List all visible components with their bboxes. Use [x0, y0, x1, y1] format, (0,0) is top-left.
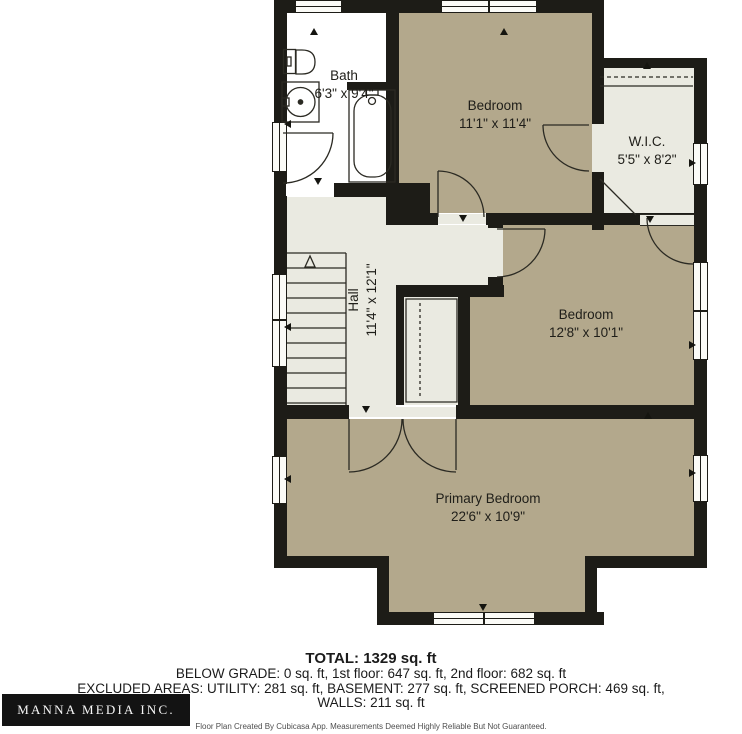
label-bedroom-mid: Bedroom 12'8" x 10'1"	[549, 306, 623, 342]
wall	[386, 13, 399, 197]
window	[484, 612, 535, 625]
window	[272, 456, 287, 504]
door-opening	[592, 124, 604, 172]
room-dims: 22'6" x 10'9"	[435, 508, 540, 526]
room-dims: 11'1" x 11'4"	[459, 115, 531, 133]
wall	[274, 183, 286, 197]
room-name: Bedroom	[549, 306, 623, 324]
wall	[396, 285, 404, 405]
room-dims: 11'4" x 12'1"	[363, 263, 381, 336]
room-dims: 12'8" x 10'1"	[549, 324, 623, 342]
room-name: Hall	[345, 263, 363, 336]
logo-text: MANNA MEDIA INC.	[17, 702, 175, 718]
window	[272, 320, 287, 367]
window	[693, 262, 708, 311]
label-primary: Primary Bedroom 22'6" x 10'9"	[435, 490, 540, 526]
total-area: TOTAL: 1329 sq. ft	[0, 651, 742, 667]
door-opening	[349, 407, 456, 417]
room-name: Bath	[314, 67, 373, 85]
room-bedroom-mid-ext	[470, 295, 490, 407]
wall	[274, 556, 378, 568]
wall	[585, 556, 707, 568]
room-hall-closet	[404, 297, 458, 405]
door-opening	[286, 184, 334, 196]
window	[441, 0, 489, 13]
wall	[458, 285, 470, 405]
label-hall: Hall 11'4" x 12'1"	[345, 263, 381, 336]
wall	[274, 405, 349, 419]
room-dims: 5'5" x 8'2"	[617, 151, 676, 169]
wall	[456, 405, 707, 419]
window	[489, 0, 537, 13]
door-opening	[488, 228, 503, 277]
manna-media-logo: MANNA MEDIA INC.	[2, 694, 190, 726]
room-name: Primary Bedroom	[435, 490, 540, 508]
window	[693, 143, 708, 185]
floors-area: BELOW GRADE: 0 sq. ft, 1st floor: 647 sq…	[0, 667, 742, 682]
door-opening	[640, 214, 694, 226]
window	[693, 311, 708, 360]
label-wic: W.I.C. 5'5" x 8'2"	[617, 133, 676, 169]
door-opening	[438, 214, 486, 224]
wall	[430, 213, 438, 225]
room-dims: 6'3" x 9'4"	[314, 85, 373, 103]
window	[433, 612, 484, 625]
window	[272, 122, 287, 172]
room-hall-corridor	[396, 225, 488, 285]
wall	[404, 285, 504, 297]
wall	[592, 0, 604, 230]
room-primary-ext	[389, 556, 585, 612]
room-name: W.I.C.	[617, 133, 676, 151]
wall	[386, 183, 430, 225]
label-bedroom-top: Bedroom 11'1" x 11'4"	[459, 97, 531, 133]
window	[693, 455, 708, 502]
window	[295, 0, 342, 13]
wall	[486, 213, 604, 225]
floor-plan-page: Bath 6'3" x 9'4" Bedroom 11'1" x 11'4" W…	[0, 0, 742, 734]
room-name: Bedroom	[459, 97, 531, 115]
wall	[488, 213, 503, 228]
room-primary	[287, 419, 694, 556]
label-bath: Bath 6'3" x 9'4"	[314, 67, 373, 103]
wall	[592, 58, 707, 68]
window	[272, 274, 287, 320]
